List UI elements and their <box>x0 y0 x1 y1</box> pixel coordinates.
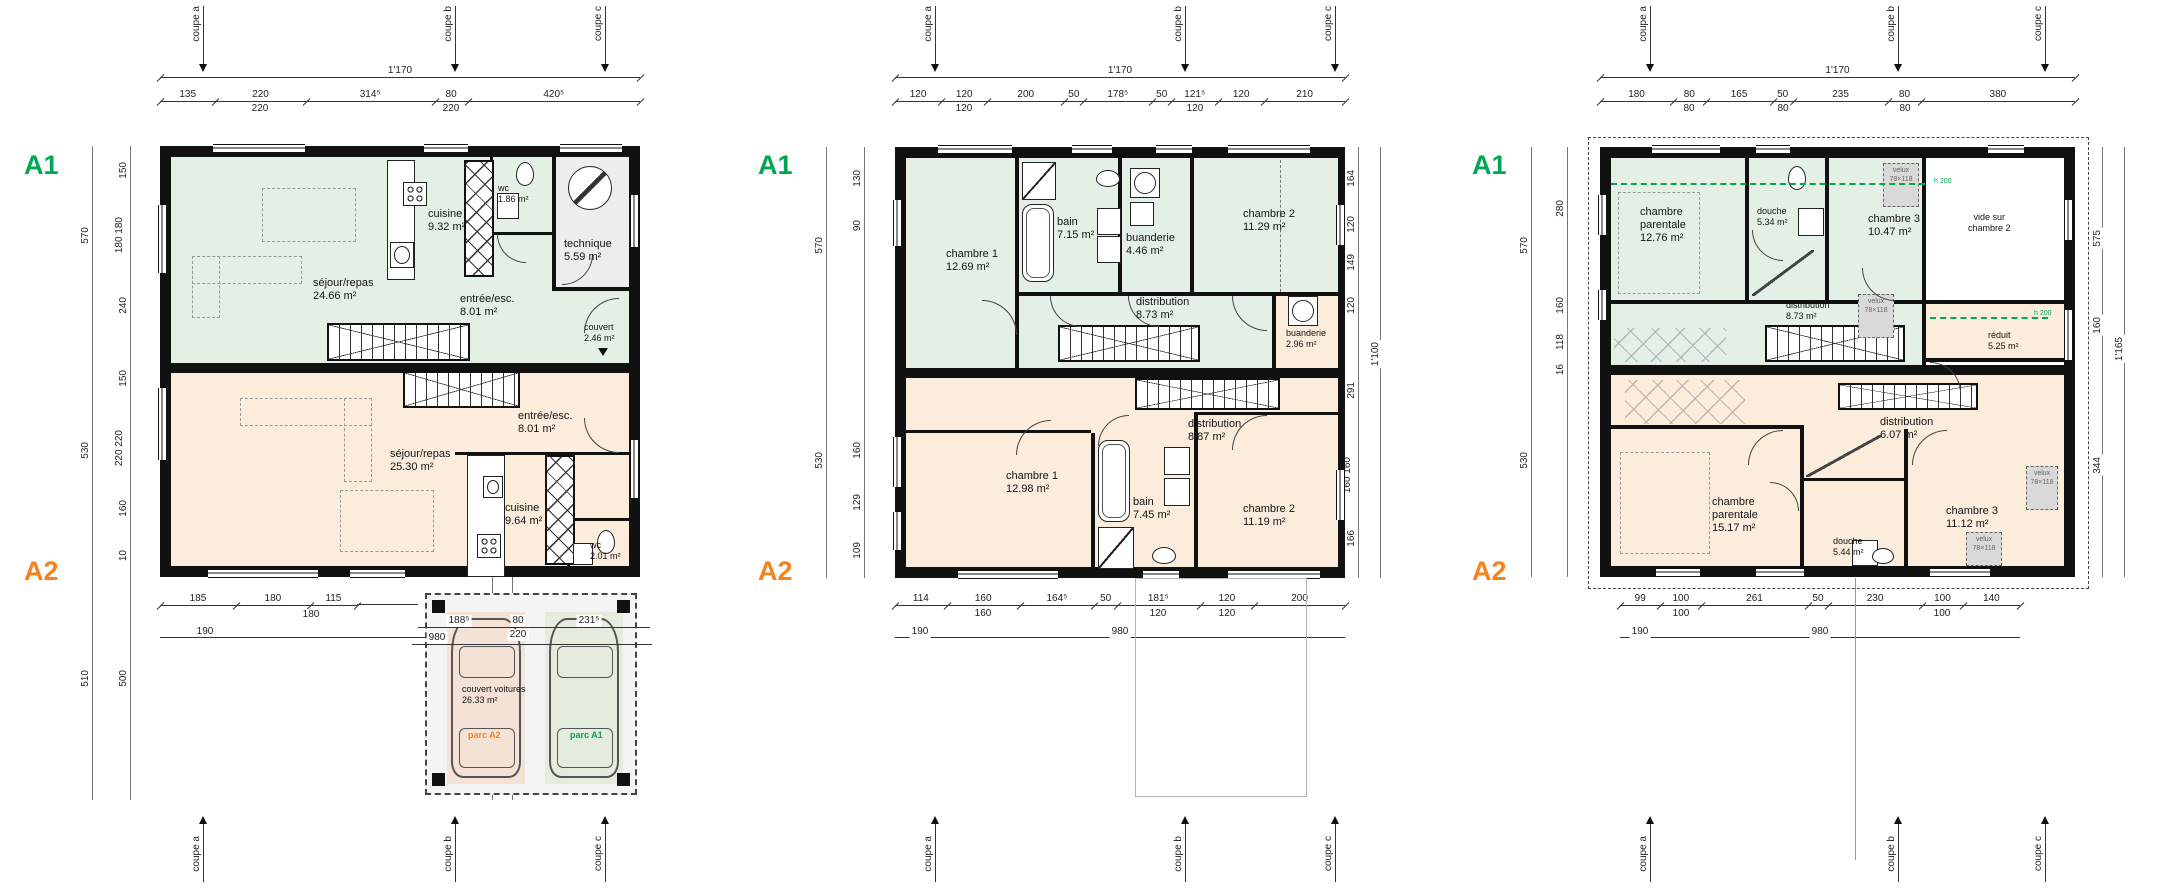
height-label: h 200 <box>1934 178 1952 185</box>
window <box>1988 145 2024 154</box>
room-name: chambre parentale <box>1712 496 1778 522</box>
section-arrow-icon <box>601 816 609 824</box>
window <box>424 144 468 153</box>
entry-arrow-icon <box>598 348 608 356</box>
stair-a1 <box>1058 325 1200 362</box>
dim-line <box>418 627 650 628</box>
dim-value: 220 <box>508 629 529 641</box>
room-area: 5.25 m² <box>1988 341 2019 352</box>
section-marker-coupe-c-bottom: coupe c <box>591 816 613 890</box>
room-area: 2.96 m² <box>1286 339 1342 350</box>
section-arrow-icon <box>1181 816 1189 824</box>
dim-row-top: 12012020050178⁵50121⁵120210 <box>895 86 1345 102</box>
room-label: distribution6.07 m² <box>1880 416 1933 442</box>
section-line <box>1898 6 1899 66</box>
section-arrow-icon <box>2041 816 2049 824</box>
room-area: 8.01 m² <box>518 423 572 436</box>
velux-size: 78×118 <box>1967 545 2001 554</box>
dim-value: 140 <box>1963 592 2020 605</box>
dim-value: 180 <box>301 609 322 621</box>
dim-value: 220 220 <box>114 428 125 468</box>
room-area: 5.44 m² <box>1833 547 1864 558</box>
section-marker-coupe-c-bottom: coupe c <box>1321 816 1343 890</box>
section-marker-coupe-b-bottom: coupe b <box>1171 816 1193 890</box>
furniture-sofa <box>192 256 220 318</box>
room-name: wc <box>498 183 529 194</box>
room-label: douche5.34 m² <box>1757 206 1788 228</box>
dim-row-bottom: 9910026150230100140 <box>1620 590 2020 606</box>
window <box>350 569 405 578</box>
room-name: couvert <box>584 322 615 333</box>
dim-value: 980 <box>1810 626 1831 638</box>
unit-a2-tag: A2 <box>24 556 59 587</box>
wall <box>1800 429 1804 566</box>
hob-icon <box>403 182 427 206</box>
wall <box>552 287 629 291</box>
furniture-table <box>340 490 434 552</box>
dim-value: 166 <box>1346 528 1357 549</box>
stair-a2 <box>1135 378 1280 410</box>
dim-value: 575 <box>2092 228 2103 249</box>
washer-icon <box>1288 296 1318 326</box>
dim-value: 121⁵ <box>1171 88 1218 101</box>
room-area: 11.19 m² <box>1243 516 1295 529</box>
coupe-label: coupe b <box>1886 836 1897 872</box>
dim-value: 185 <box>160 592 236 605</box>
window <box>1336 470 1345 520</box>
room-name: réduit <box>1988 330 2019 341</box>
dim-value: 180 180 <box>114 215 125 255</box>
parking-label-a1: parc A1 <box>570 730 603 740</box>
section-marker-coupe-a-bottom: coupe a <box>189 816 211 890</box>
dim-value: 261 <box>1701 592 1808 605</box>
section-line <box>935 6 936 66</box>
dim-value: 120 <box>1185 103 1206 115</box>
room-name: douche <box>1833 536 1864 547</box>
section-line <box>1335 6 1336 66</box>
dim-value: 220 <box>250 103 271 115</box>
wardrobe <box>545 455 575 565</box>
sink-icon <box>1798 208 1824 236</box>
window <box>2064 310 2073 360</box>
dim-value: 570 <box>80 225 91 246</box>
room-area: 24.66 m² <box>313 290 374 303</box>
room-area: 12.69 m² <box>946 261 998 274</box>
coupe-label: coupe a <box>923 6 934 42</box>
dim-value: 510 <box>80 668 91 689</box>
dim-value: 160 <box>947 592 1020 605</box>
room-label: bain7.15 m² <box>1057 216 1094 242</box>
furniture-table <box>262 188 356 242</box>
room-name: chambre parentale <box>1640 206 1706 232</box>
dim-value: 160 <box>1555 295 1566 316</box>
room-label: wc1.86 m² <box>498 183 529 205</box>
room-area: 2.46 m² <box>584 333 615 344</box>
wall <box>1745 158 1749 301</box>
dim-value: 129 <box>852 492 863 513</box>
room-name: séjour/repas <box>313 277 374 290</box>
room-label: chambre parentale12.76 m² <box>1640 206 1706 246</box>
dim-value: 80 <box>510 615 525 627</box>
room-label: entrée/esc.8.01 m² <box>518 410 572 436</box>
room-label: entrée/esc.8.01 m² <box>460 293 514 319</box>
dim-value: 210 <box>1264 88 1345 101</box>
wall <box>1015 158 1019 368</box>
window <box>1228 145 1310 154</box>
dim-value: 120 <box>954 103 975 115</box>
section-arrow-icon <box>931 816 939 824</box>
room-name: douche <box>1757 206 1788 217</box>
boiler-icon <box>568 166 612 210</box>
room-label: chambre 112.69 m² <box>946 248 998 274</box>
window <box>213 144 305 153</box>
section-line <box>2045 824 2046 882</box>
room-area: 5.34 m² <box>1757 217 1788 228</box>
section-line <box>1898 824 1899 882</box>
room-label: buanderie2.96 m² <box>1286 328 1342 350</box>
coupe-label: coupe b <box>1173 6 1184 42</box>
coupe-label: coupe a <box>191 836 202 872</box>
room-label: bain7.45 m² <box>1133 496 1170 522</box>
unit-a2-tag: A2 <box>1472 556 1507 587</box>
dim-value: 235 <box>1793 88 1888 101</box>
section-line <box>455 824 456 882</box>
dim-value: 380 <box>1921 88 2075 101</box>
dim-row-bottom: 185180115 <box>160 590 357 606</box>
car-windshield <box>459 646 515 678</box>
room-name: cuisine <box>428 208 465 221</box>
room-name: cuisine <box>505 502 542 515</box>
sink-icon <box>1130 202 1154 226</box>
wall <box>1926 300 2064 304</box>
dim-value: 120 <box>1346 214 1357 235</box>
room-label: distribution8.73 m² <box>1136 296 1189 322</box>
room-label: buanderie4.46 m² <box>1126 232 1175 258</box>
dim-value: 188⁵ <box>447 615 472 627</box>
velux-size: 78×118 <box>1859 307 1893 316</box>
dim-value: 1'100 <box>1370 340 1381 368</box>
section-arrow-icon <box>451 816 459 824</box>
kitchen-counter <box>467 455 505 577</box>
dim-value: 80 <box>1897 103 1912 115</box>
unit-a2-tag: A2 <box>758 556 793 587</box>
below-building-outline <box>1135 578 1307 797</box>
stair-a1 <box>327 323 470 361</box>
dim-value: 80 <box>1673 88 1705 101</box>
dim-value: 164⁵ <box>1020 592 1095 605</box>
wc-icon <box>1872 548 1894 564</box>
coupe-label: coupe c <box>1323 836 1334 871</box>
section-line <box>935 824 936 882</box>
section-marker-coupe-a-bottom: coupe a <box>921 816 943 890</box>
section-line <box>605 6 606 66</box>
dim-value: 118 <box>1555 332 1566 352</box>
room-area: 11.12 m² <box>1946 518 1998 531</box>
room-area: 12.76 m² <box>1640 232 1706 245</box>
hob-icon <box>477 534 501 558</box>
dim-value: 420⁵ <box>468 88 641 101</box>
dim-value: 109 <box>852 540 863 561</box>
section-marker-coupe-a-bottom: coupe a <box>1636 816 1658 890</box>
dim-value: 165 <box>1706 88 1773 101</box>
room-label: chambre 112.98 m² <box>1006 470 1058 496</box>
carport-post <box>617 773 630 786</box>
dim-value: 149 <box>1346 252 1357 273</box>
section-line <box>455 6 456 66</box>
dim-value: 164 <box>1346 168 1357 189</box>
window <box>2064 200 2073 240</box>
window <box>1598 290 1607 320</box>
room-area: 2.01 m² <box>590 551 621 562</box>
room-name: vide sur <box>1968 212 2011 223</box>
dim-value: 344 <box>2092 455 2103 476</box>
room-label: chambre 211.19 m² <box>1243 503 1295 529</box>
sink-icon <box>1097 236 1121 263</box>
room-name: couvert voitures <box>462 684 572 695</box>
parking-label-a2: parc A2 <box>468 730 501 740</box>
dim-value: 1'170 <box>895 64 1345 77</box>
velux-box: velux78×118 <box>2026 466 2058 510</box>
dim-value: 114 <box>895 592 947 605</box>
section-line <box>1650 824 1651 882</box>
dim-value: 80 <box>435 88 468 101</box>
dim-value: 980 <box>427 632 448 644</box>
floor-plan-sheet: A1 A2 coupe a coupe b coupe c coupe a co… <box>0 0 2164 896</box>
dim-line <box>864 147 865 578</box>
dim-value: 180 <box>236 592 310 605</box>
room-name: technique <box>564 238 612 251</box>
coupe-label: coupe c <box>593 836 604 871</box>
furniture-bed <box>1620 452 1710 554</box>
dim-value: 16 <box>1555 362 1566 377</box>
dim-line <box>92 146 93 800</box>
room-name: bain <box>1133 496 1170 509</box>
dim-value: 530 <box>80 440 91 461</box>
velux-label: velux <box>2027 470 2057 479</box>
velux-box: velux78×118 <box>1858 294 1894 338</box>
section-line <box>1650 6 1651 66</box>
unit-a1-tag: A1 <box>758 150 793 181</box>
coupe-label: coupe b <box>443 6 454 42</box>
room-area: chambre 2 <box>1968 223 2011 234</box>
dim-value: 50 <box>1773 88 1793 101</box>
window <box>1930 568 1990 577</box>
room-name: chambre 1 <box>946 248 998 261</box>
sink-icon <box>1164 447 1190 475</box>
dim-value: 231⁵ <box>577 615 602 627</box>
coupe-label: coupe c <box>2033 6 2044 41</box>
room-area: 8.73 m² <box>1136 309 1189 322</box>
room-label: cuisine9.64 m² <box>505 502 542 528</box>
section-arrow-icon <box>199 816 207 824</box>
carport-post <box>617 600 630 613</box>
dim-value: 280 <box>1555 198 1566 219</box>
wall <box>552 157 556 287</box>
room-label: cuisine9.32 m² <box>428 208 465 234</box>
shower-icon <box>1022 162 1056 200</box>
void-hatch <box>1614 328 1726 362</box>
height-line <box>1930 317 2048 319</box>
dim-value: 220 <box>215 88 305 101</box>
dim-value: 150 <box>118 368 129 389</box>
room-area: 25.30 m² <box>390 461 451 474</box>
room-label: couvert2.46 m² <box>584 322 615 344</box>
dim-value: 500 <box>118 668 129 689</box>
window <box>208 569 318 578</box>
dim-value: 50 <box>1152 88 1171 101</box>
window <box>560 144 622 153</box>
wall <box>1611 425 1804 429</box>
wall <box>1190 158 1194 295</box>
room-label: distribution8.73 m² <box>1786 300 1830 322</box>
dim-value: 314⁵ <box>306 88 435 101</box>
window <box>158 388 167 460</box>
appliance-icon <box>390 242 414 268</box>
room-area: 7.45 m² <box>1133 509 1170 522</box>
room-name: chambre 1 <box>1006 470 1058 483</box>
dim-value: 120 <box>1346 295 1357 316</box>
party-wall <box>906 368 1338 378</box>
dim-row-total: 1'170 <box>160 62 640 78</box>
dim-value: 115 <box>310 592 357 605</box>
dim-value: 530 <box>814 450 825 471</box>
dim-value: 100 <box>1922 592 1963 605</box>
coupe-label: coupe b <box>443 836 454 872</box>
velux-label: velux <box>1884 167 1918 176</box>
height-line <box>1611 183 1925 185</box>
dim-line <box>130 146 131 800</box>
room-area: 12.98 m² <box>1006 483 1058 496</box>
room-area: 8.87 m² <box>1188 431 1241 444</box>
dim-value: 50 <box>1094 592 1117 605</box>
dim-value: 160 <box>973 608 994 620</box>
section-line <box>1185 824 1186 882</box>
wc-icon <box>1152 547 1176 564</box>
room-area: 8.73 m² <box>1786 311 1830 322</box>
room-label: douche5.44 m² <box>1833 536 1864 558</box>
window <box>1156 145 1192 154</box>
room-area: 5.59 m² <box>564 251 612 264</box>
wall <box>1922 158 1926 365</box>
room-name: buanderie <box>1126 232 1175 245</box>
unit-a1-tag: A1 <box>24 150 59 181</box>
dim-row-top: 135220314⁵80420⁵ <box>160 86 640 102</box>
party-wall <box>171 363 629 373</box>
room-name: distribution <box>1188 418 1241 431</box>
dim-row-total: 1'170 <box>895 62 1345 78</box>
dim-value: 130 <box>852 168 863 189</box>
room-area: 26.33 m² <box>462 695 572 706</box>
window <box>630 440 639 498</box>
section-line <box>203 6 204 66</box>
coupe-label: coupe b <box>1886 6 1897 42</box>
wall <box>567 518 629 521</box>
window <box>630 195 639 247</box>
room-label: vide surchambre 2 <box>1968 212 2011 234</box>
dim-value: 180 <box>1600 88 1673 101</box>
wall <box>906 430 1091 433</box>
room-label: chambre 311.12 m² <box>1946 505 1998 531</box>
window <box>1598 195 1607 235</box>
dim-value: 99 <box>1620 592 1660 605</box>
dim-value: 135 <box>160 88 215 101</box>
window <box>893 200 902 246</box>
wardrobe <box>464 160 494 277</box>
room-label: séjour/repas24.66 m² <box>313 277 374 303</box>
bathtub-icon <box>1098 440 1130 522</box>
shower-icon <box>1806 435 1882 477</box>
dim-value: 291 <box>1346 380 1357 401</box>
dim-line <box>2102 147 2103 577</box>
room-label: technique5.59 m² <box>564 238 612 264</box>
dim-line <box>1531 147 1532 577</box>
shower-icon <box>1098 527 1134 569</box>
coupe-label: coupe a <box>1638 6 1649 42</box>
section-marker-coupe-c-bottom: coupe c <box>2031 816 2053 890</box>
dim-value: 100 <box>1660 592 1701 605</box>
dim-row-top: 180801655023580380 <box>1600 86 2075 102</box>
room-label: couvert voitures26.33 m² <box>462 684 572 706</box>
dim-value: 570 <box>814 235 825 256</box>
dim-value: 530 <box>1519 450 1530 471</box>
room-name: wc <box>590 540 621 551</box>
window <box>158 205 167 273</box>
dim-value: 50 <box>1064 88 1083 101</box>
dim-value: 120 <box>1218 88 1264 101</box>
stair-a2 <box>403 371 520 408</box>
window <box>1756 568 1804 577</box>
coupe-label: coupe a <box>923 836 934 872</box>
room-area: 15.17 m² <box>1712 522 1778 535</box>
unit-a1-tag: A1 <box>1472 150 1507 181</box>
dim-value: 178⁵ <box>1083 88 1152 101</box>
room-area: 4.46 m² <box>1126 245 1175 258</box>
window <box>938 145 1012 154</box>
section-extension-line <box>1855 578 1856 860</box>
dim-value: 100 <box>1932 608 1953 620</box>
dim-value: 120 <box>895 88 941 101</box>
dim-value: 980 <box>1110 626 1131 638</box>
dim-line <box>1567 147 1568 577</box>
dim-line <box>357 604 418 605</box>
room-name: distribution <box>1786 300 1830 311</box>
velux-label: velux <box>1967 536 2001 545</box>
room-name: chambre 2 <box>1243 503 1295 516</box>
room-label: wc2.01 m² <box>590 540 621 562</box>
dim-value: 160 <box>852 440 863 461</box>
dim-value: 100 <box>1671 608 1692 620</box>
void-hatch <box>1625 380 1745 424</box>
wall <box>1091 433 1095 567</box>
room-label: distribution8.87 m² <box>1188 418 1241 444</box>
dim-value: 1'170 <box>1600 64 2075 77</box>
room-area: 9.64 m² <box>505 515 542 528</box>
room-name: entrée/esc. <box>460 293 514 306</box>
velux-box: velux78×118 <box>1966 532 2002 566</box>
room-area: 9.32 m² <box>428 221 465 234</box>
room-area: 6.07 m² <box>1880 429 1933 442</box>
dim-value: 1'165 <box>2114 335 2125 363</box>
window <box>958 570 1058 579</box>
dim-value: 80 <box>1775 103 1790 115</box>
coupe-label: coupe b <box>1173 836 1184 872</box>
carport-post <box>432 773 445 786</box>
room-name: distribution <box>1136 296 1189 309</box>
coupe-label: coupe a <box>1638 836 1649 872</box>
appliance-icon <box>483 476 503 498</box>
room-label: séjour/repas25.30 m² <box>390 448 451 474</box>
wall <box>1272 296 1276 368</box>
